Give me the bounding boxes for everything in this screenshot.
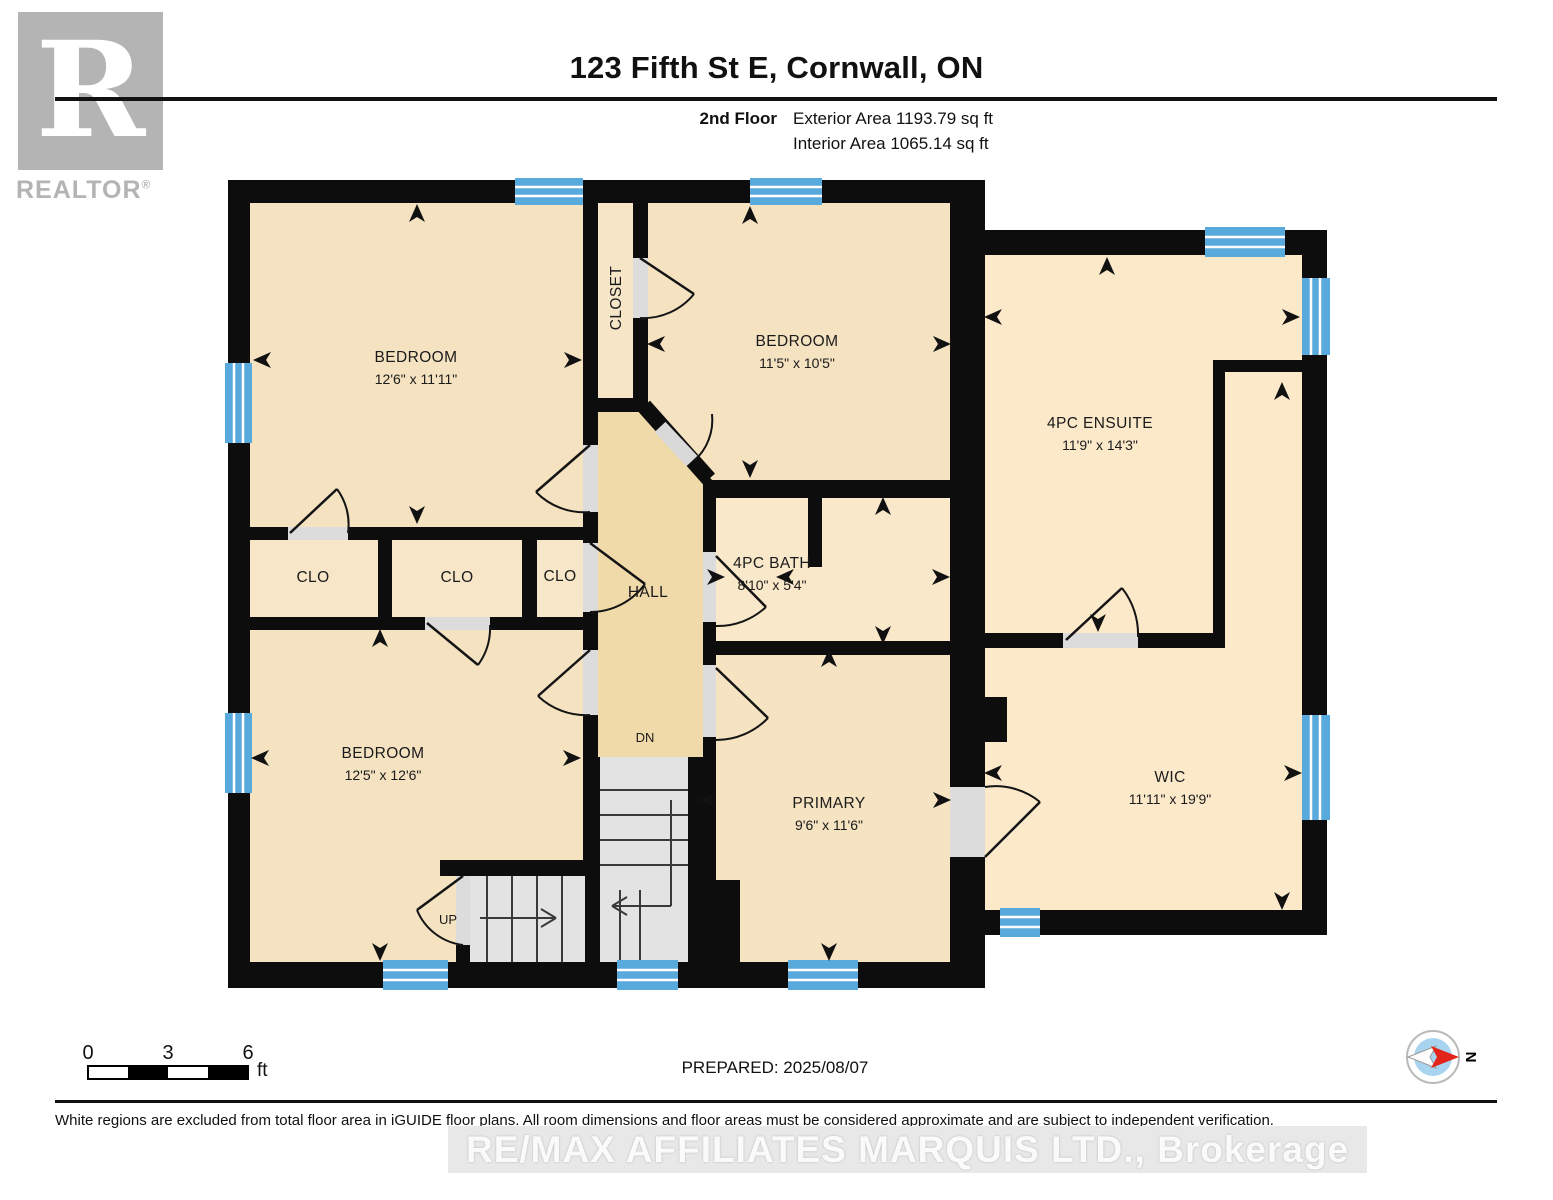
dims-bath: 8'10" x 5'4" [738,577,807,593]
window [1000,908,1040,937]
compass-north-label: N [1462,1052,1479,1063]
label-wic: WIC [1154,769,1185,786]
window [225,713,252,793]
scale-tick-6: 6 [237,1042,259,1065]
dims-bedroom-bottom-left: 12'5" x 12'6" [345,767,422,783]
scale-bar [88,1066,248,1079]
label-bedroom-top-left: BEDROOM [375,349,458,366]
label-closet-top: CLOSET [608,266,625,331]
window [383,960,448,990]
label-clo-left: CLO [296,569,329,586]
footer-divider [55,1100,1497,1103]
label-clo-middle: CLO [440,569,473,586]
window [515,178,583,205]
dims-bedroom-top-middle: 11'5" x 10'5" [759,355,835,371]
window [750,178,822,205]
label-bedroom-top-middle: BEDROOM [756,333,839,350]
scale-tick-0: 0 [77,1042,99,1065]
dims-ensuite: 11'9" x 14'3" [1062,437,1138,453]
window [225,363,252,443]
label-bedroom-bottom-left: BEDROOM [342,745,425,762]
dims-bedroom-top-left: 12'6" x 11'11" [375,371,458,387]
label-bath: 4PC BATH [733,555,811,572]
brokerage-watermark: RE/MAX AFFILIATES MARQUIS LTD., Brokerag… [448,1126,1367,1173]
window [1302,278,1330,355]
window [1205,227,1285,257]
scale-tick-3: 3 [157,1042,179,1065]
window [1302,715,1330,820]
label-stairs-up: UP [439,912,457,927]
window [617,960,678,990]
floorplan: BEDROOM 12'6" x 11'11" CLOSET BEDROOM 11… [0,0,1553,1200]
label-ensuite: 4PC ENSUITE [1047,415,1153,432]
label-stairs-dn: DN [636,730,655,745]
label-hall: HALL [628,584,668,601]
window [788,960,858,990]
label-primary: PRIMARY [792,795,865,812]
compass-icon: N [1407,1031,1479,1083]
dims-wic: 11'11" x 19'9" [1129,791,1212,807]
prepared-date: PREPARED: 2025/08/07 [600,1058,950,1078]
dims-primary: 9'6" x 11'6" [795,817,863,833]
scale-unit: ft [257,1060,268,1082]
label-clo-right: CLO [543,568,576,585]
